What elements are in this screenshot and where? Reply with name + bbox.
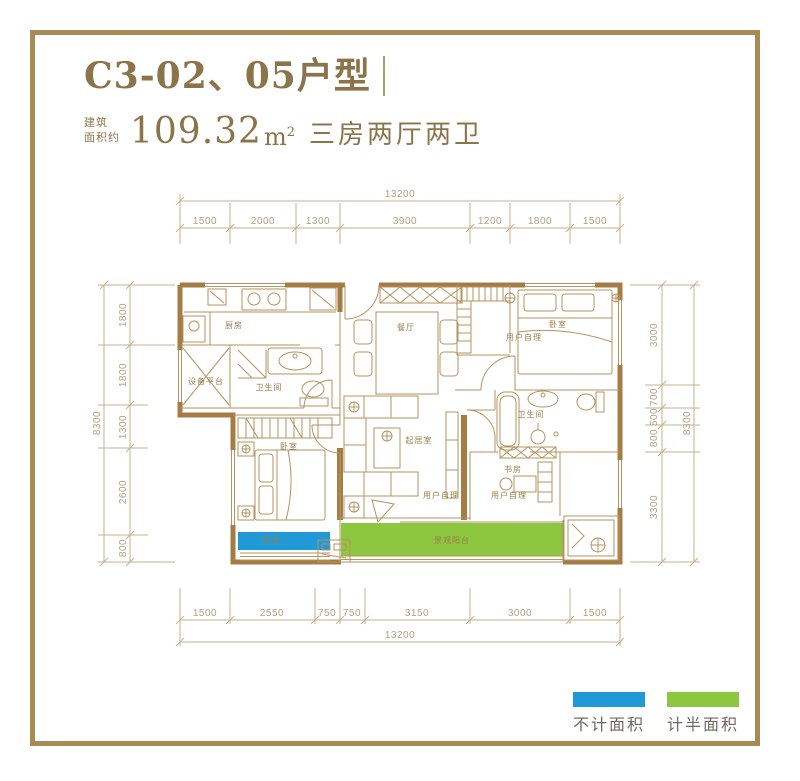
dining-label: 餐厅	[397, 323, 415, 332]
ac-unit-right	[564, 516, 619, 560]
bathroom2-label: 卫生间	[518, 409, 545, 419]
no-area-label: 不计面积	[573, 711, 645, 735]
living-label: 起居室	[406, 435, 433, 445]
entry-opening	[345, 279, 379, 290]
dim-left-seg: 1800	[118, 303, 129, 327]
floorplan-page: C3-02、05户型 建筑 面积约 109.32 m2 三房两厅两卫	[0, 0, 800, 781]
dim-bottom-seg: 750	[318, 608, 336, 619]
dining-furniture	[354, 287, 462, 394]
bathroom1-fixtures	[238, 348, 328, 406]
kitchen-label: 厨房	[225, 320, 243, 330]
dim-top-seg: 1500	[583, 216, 607, 227]
dim-top-total: 13200	[385, 189, 415, 200]
floor-plan-canvas: 13200 1500 2000 1300 3900 1200 1800 1500…	[0, 0, 800, 781]
living-furniture	[344, 396, 458, 522]
dim-top-seg: 1300	[306, 216, 330, 227]
dim-top-seg: 1500	[193, 216, 217, 227]
dim-right-seg: 3300	[649, 495, 660, 519]
dim-bottom-total: 13200	[385, 630, 415, 641]
equipment-platform-label: 设备平台	[188, 376, 224, 386]
dim-bottom-seg: 3150	[405, 608, 429, 619]
dim-right-seg: 800	[649, 429, 660, 447]
dim-top-seg: 1800	[528, 216, 552, 227]
bedroom1-furniture	[505, 290, 620, 374]
dim-right-total: 8300	[682, 411, 693, 435]
legend-item-no-area: 不计面积	[573, 692, 645, 735]
dim-top-seg: 1200	[478, 216, 502, 227]
no-area-swatch	[573, 692, 645, 707]
no-area-flowerbed-fill	[238, 532, 330, 550]
dim-bottom-seg: 3000	[508, 608, 532, 619]
legend: 不计面积 计半面积	[573, 692, 739, 735]
entry-closet	[457, 287, 510, 353]
dim-left-seg: 1300	[118, 415, 129, 439]
dim-bottom-seg: 2550	[260, 608, 284, 619]
owner-note2-label: 用户自理	[491, 490, 527, 500]
dim-right-seg: 700	[649, 388, 660, 406]
owner-note3-label: 用户自理	[423, 490, 459, 500]
dim-left-seg: 800	[118, 539, 129, 557]
bedroom2-furniture	[238, 418, 332, 520]
bedroom2-label: 卧室	[280, 441, 298, 451]
dim-left-total: 8300	[92, 411, 103, 435]
half-area-label: 计半面积	[667, 711, 739, 735]
dim-left-seg: 2600	[118, 480, 129, 504]
owner-note1-label: 用户自理	[506, 332, 542, 342]
study-label: 书房	[504, 464, 522, 474]
flowerbed-label: 花池	[262, 535, 280, 545]
dim-bottom-seg: 1500	[583, 608, 607, 619]
dim-top-seg: 3900	[393, 216, 417, 227]
bathroom1-label: 卫生间	[256, 382, 283, 392]
flowerbed-louvers	[240, 553, 330, 560]
kitchen-fixtures	[183, 288, 336, 345]
half-area-swatch	[667, 692, 739, 707]
bedroom1-label: 卧室	[549, 319, 567, 329]
dim-bottom-seg: 750	[343, 608, 361, 619]
dim-right-seg: 500	[649, 408, 660, 426]
dimension-lines	[98, 194, 700, 646]
dim-left-seg: 1800	[118, 363, 129, 387]
dim-top-seg: 2000	[251, 216, 275, 227]
bathroom2-fixtures	[497, 391, 604, 450]
legend-item-half-area: 计半面积	[667, 692, 739, 735]
dim-bottom-seg: 1500	[193, 608, 217, 619]
balcony-label: 景观阳台	[434, 535, 470, 545]
dim-right-seg: 3000	[649, 323, 660, 347]
